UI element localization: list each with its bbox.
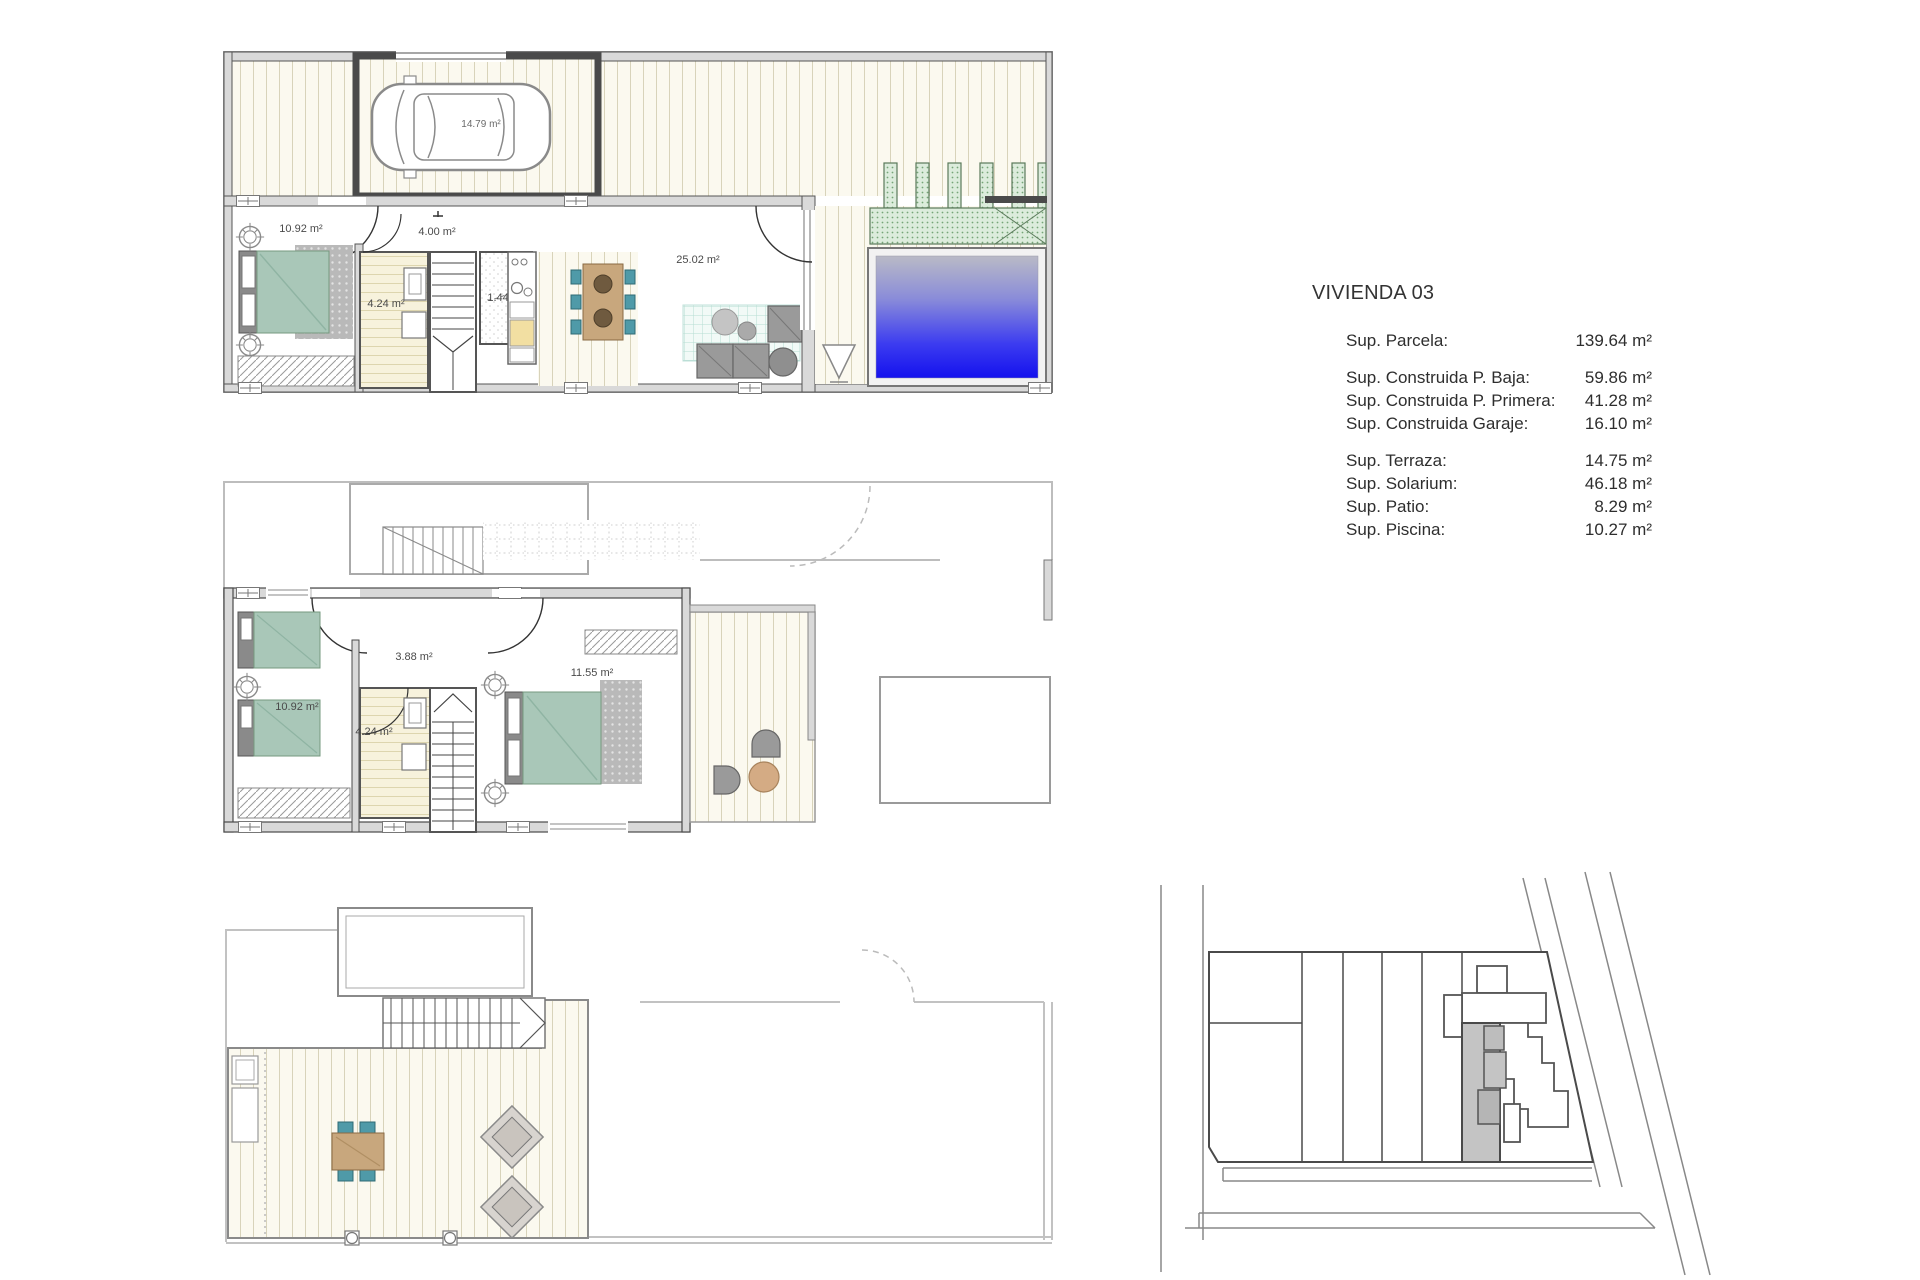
summary-label: Sup. Construida P. Baja: (1346, 366, 1530, 389)
garage: 14.79 m² (356, 48, 598, 196)
pool (868, 248, 1046, 386)
window-marker (237, 588, 260, 599)
window-marker (565, 196, 588, 207)
window-marker (507, 822, 530, 833)
bedroom-first: 10.92 m² (233, 589, 367, 818)
window-marker (383, 822, 406, 833)
summary-value: 139.64 m² (1575, 329, 1652, 352)
side-table (712, 309, 738, 335)
room-label-bathroom: 4.24 m² (367, 298, 405, 310)
room-label-hall: 4.00 m² (418, 226, 456, 238)
summary-row: Sup. Solarium: 46.18 m² (1312, 472, 1652, 495)
terrace-chair-icon (752, 730, 780, 757)
summary-row: Sup. Construida Garaje: 16.10 m² (1312, 412, 1652, 435)
counter-cabinet (510, 320, 534, 346)
window-marker (1029, 383, 1052, 394)
ceiling-light-icon (233, 673, 261, 701)
summary-value: 41.28 m² (1585, 389, 1652, 412)
summary-row: Sup. Piscina: 10.27 m² (1312, 518, 1652, 541)
stairs-first (430, 688, 476, 832)
summary-value: 16.10 m² (1585, 412, 1652, 435)
side-table (738, 322, 756, 340)
summary-label: Sup. Solarium: (1346, 472, 1458, 495)
summary-value: 14.75 m² (1585, 449, 1652, 472)
terrace-table-icon (749, 762, 779, 792)
door-arc (488, 598, 543, 653)
ghost-stairs (383, 520, 700, 574)
terrace-first (690, 605, 815, 822)
terrace-chair-icon (714, 766, 740, 794)
single-bed-icon (238, 612, 320, 668)
window-marker (239, 383, 262, 394)
room-label-bedroom: 10.92 m² (279, 223, 323, 235)
window-marker (739, 383, 762, 394)
plan-sheet: 14.79 m² 10.92 m² 4.00 m² (0, 0, 1920, 1280)
summary-value: 8.29 m² (1594, 495, 1652, 518)
site-plan (1161, 872, 1710, 1275)
summary-row: Sup. Terraza: 14.75 m² (1312, 449, 1652, 472)
ghost-door-arc (790, 486, 870, 566)
post-icon (443, 1231, 457, 1245)
solarium-plan (226, 908, 1052, 1245)
room-label-garage: 14.79 m² (461, 119, 501, 130)
room-label-master: 11.55 m² (571, 667, 614, 679)
garage-door (396, 48, 506, 62)
rug (600, 680, 642, 784)
room-label-hall: 3.88 m² (395, 651, 433, 663)
ghost-door-arc (862, 950, 914, 1002)
summary-row: Sup. Patio: 8.29 m² (1312, 495, 1652, 518)
kitchen (508, 252, 536, 364)
closet (238, 356, 354, 386)
summary-row: Sup. Construida P. Primera: 41.28 m² (1312, 389, 1652, 412)
master-bedroom: 11.55 m² (481, 589, 677, 807)
summary-title: VIVIENDA 03 (1312, 282, 1652, 305)
planters (870, 163, 1047, 244)
room-label-living: 25.02 m² (676, 254, 720, 266)
bathroom-first: 4.24 m² (355, 688, 430, 818)
summary-label: Sup. Patio: (1346, 495, 1429, 518)
toilet-icon (402, 744, 426, 770)
room-label-bedroom: 10.92 m² (275, 701, 319, 713)
ground-floor-plan: 14.79 m² 10.92 m² 4.00 m² (224, 48, 1052, 394)
highlighted-parcel (1462, 1023, 1506, 1162)
summary-row: Sup. Parcela: 139.64 m² (1312, 329, 1652, 352)
stairs-ground (430, 252, 476, 392)
summary-value: 59.86 m² (1585, 366, 1652, 389)
patio-outline (880, 677, 1050, 803)
dining-table-set (571, 264, 635, 340)
floor-plan-drawing: 14.79 m² 10.92 m² 4.00 m² (0, 0, 1920, 1280)
area-summary: VIVIENDA 03 Sup. Parcela: 139.64 m² Sup.… (1312, 282, 1652, 541)
post-icon (345, 1231, 359, 1245)
summary-label: Sup. Parcela: (1346, 329, 1448, 352)
summary-row: Sup. Construida P. Baja: 59.86 m² (1312, 366, 1652, 389)
double-bed-icon (505, 692, 601, 784)
summary-label: Sup. Piscina: (1346, 518, 1445, 541)
double-bed-icon (239, 251, 329, 333)
summary-label: Sup. Terraza: (1346, 449, 1447, 472)
stair-tower (338, 908, 532, 996)
closet (585, 630, 677, 654)
window-marker (565, 383, 588, 394)
summary-value: 10.27 m² (1585, 518, 1652, 541)
first-floor-plan: 10.92 m² 3.88 m² 4.24 m² (224, 482, 1052, 834)
summary-label: Sup. Construida Garaje: (1346, 412, 1528, 435)
stairs-solarium (383, 998, 545, 1048)
window-marker (237, 196, 260, 207)
room-label-bathroom: 4.24 m² (355, 726, 393, 738)
closet (238, 788, 350, 818)
summary-label: Sup. Construida P. Primera: (1346, 389, 1555, 412)
sink-icon (402, 312, 426, 338)
window-marker (239, 822, 262, 833)
summary-value: 46.18 m² (1585, 472, 1652, 495)
